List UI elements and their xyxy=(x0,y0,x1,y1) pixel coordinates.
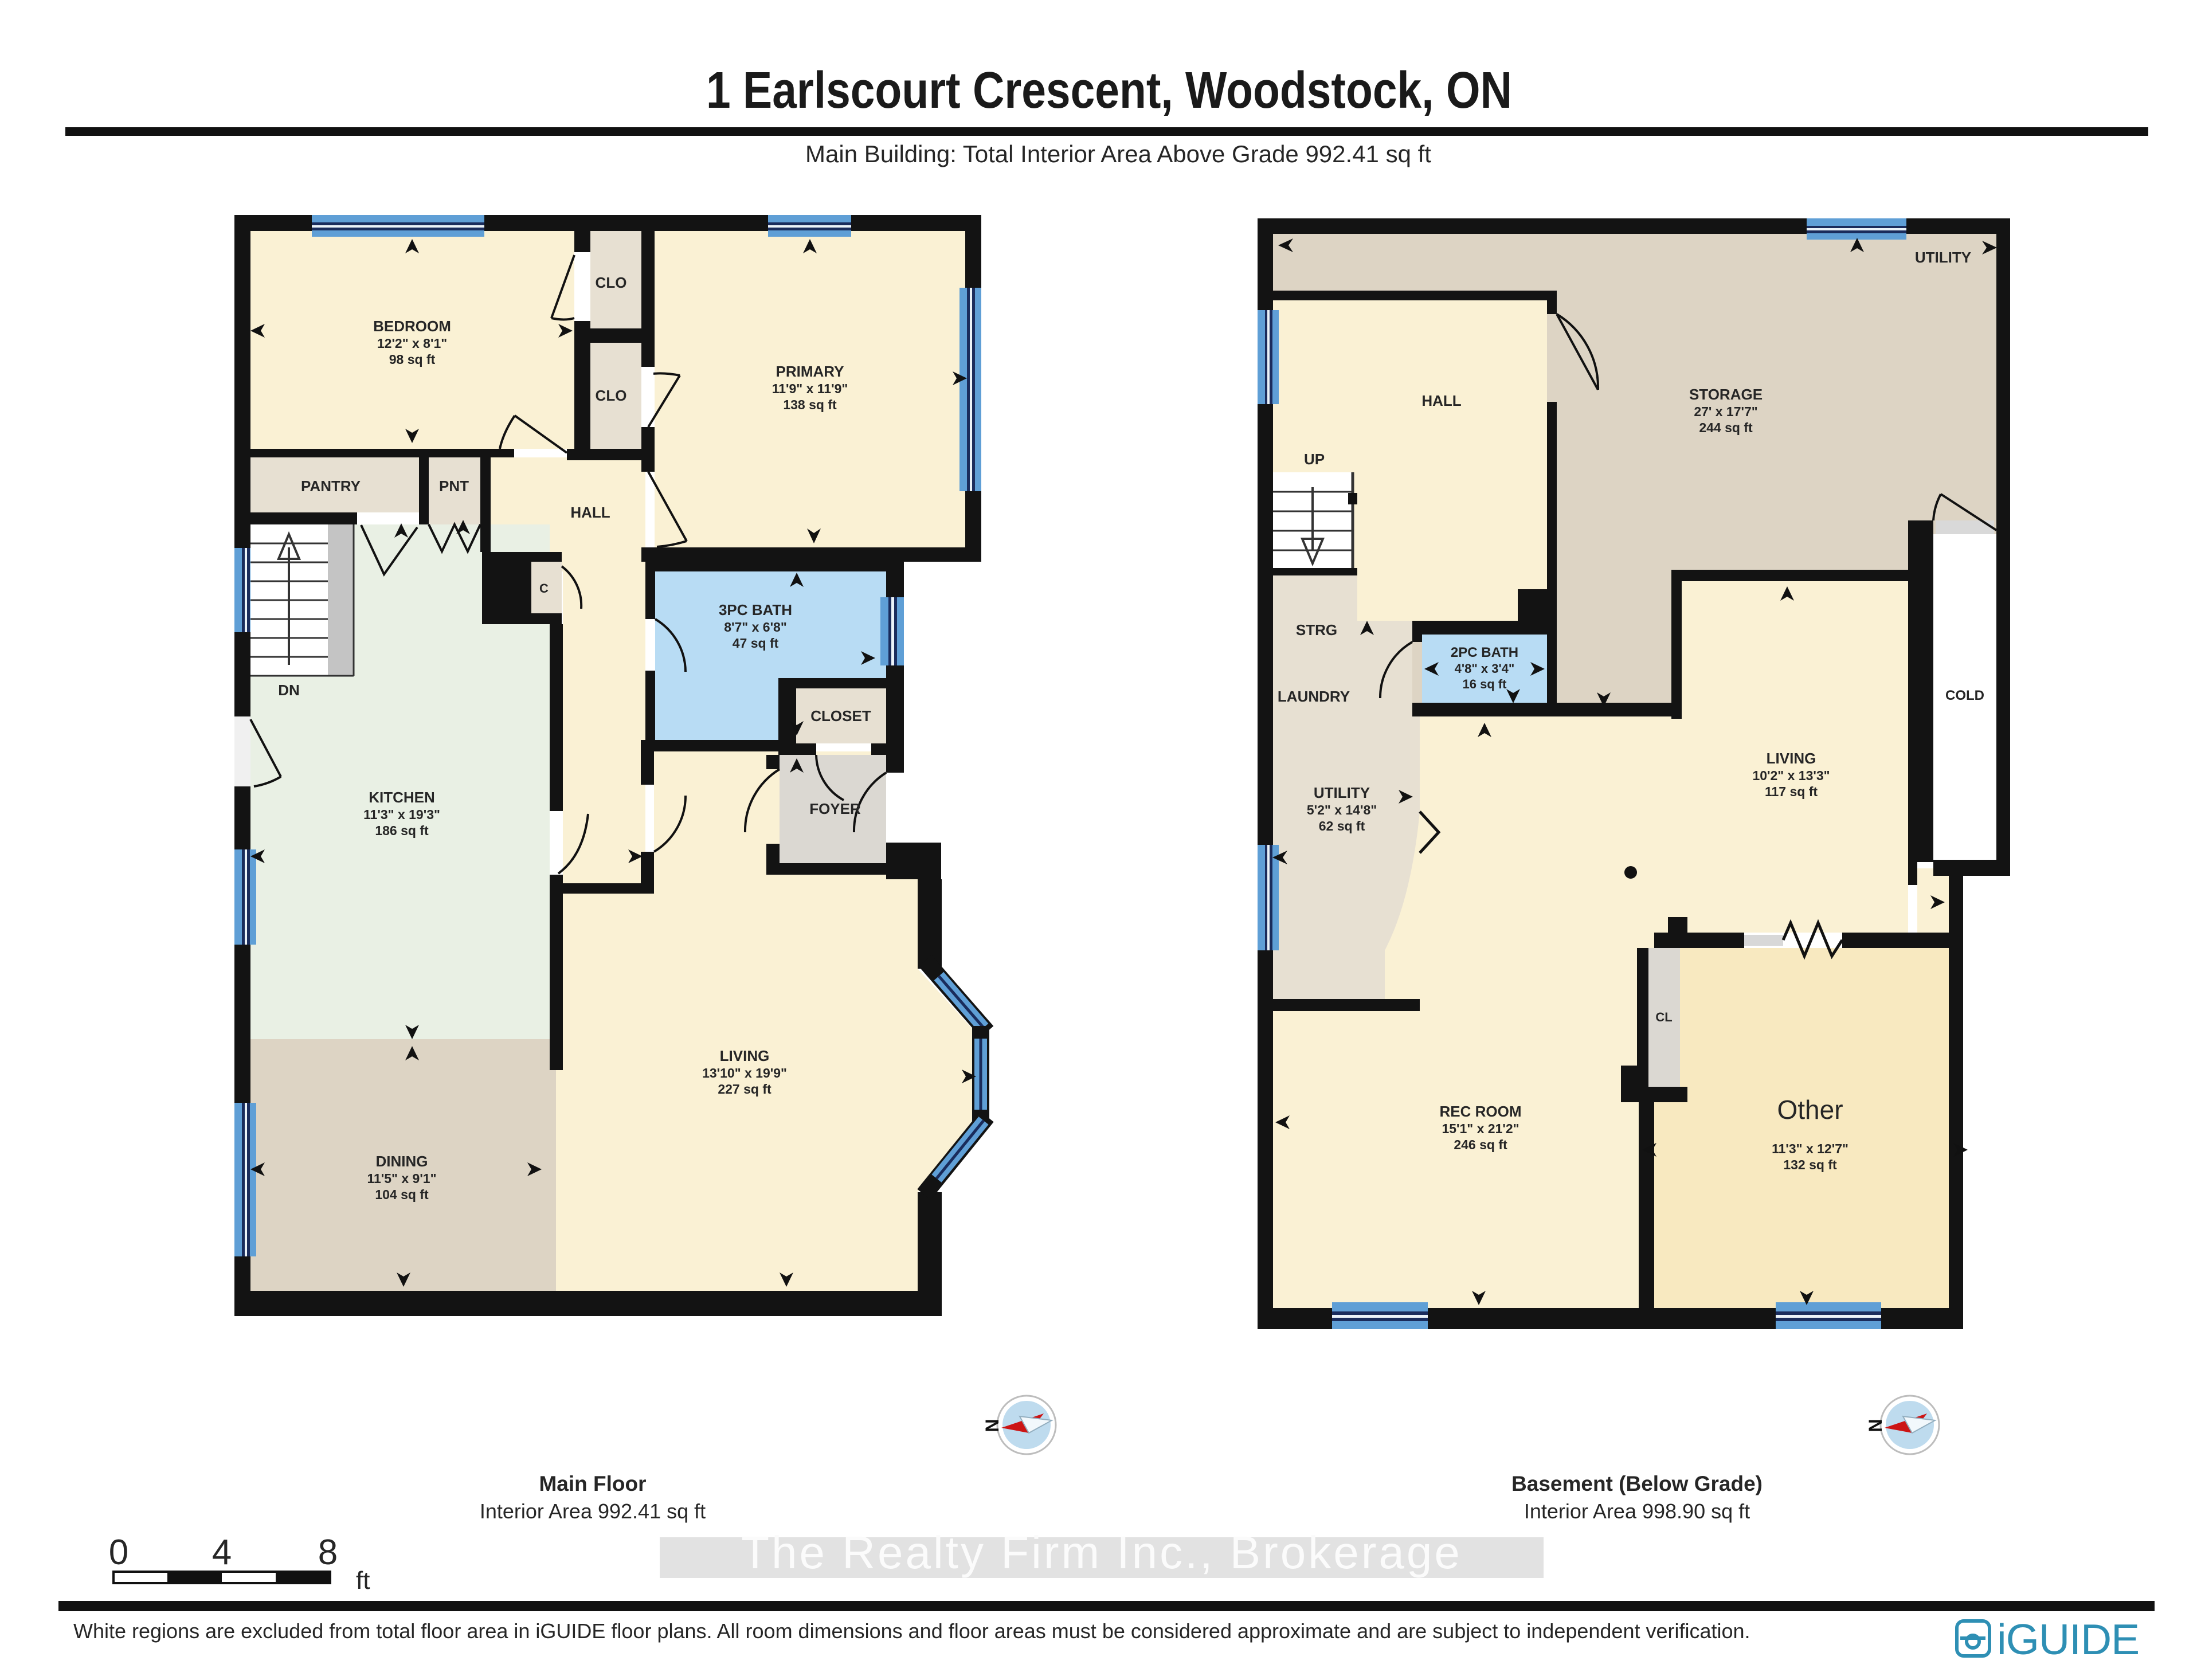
svg-text:8: 8 xyxy=(318,1533,338,1572)
svg-text:STRG: STRG xyxy=(1296,621,1337,639)
svg-text:White regions are excluded fro: White regions are excluded from total fl… xyxy=(73,1619,1750,1643)
svg-text:PRIMARY: PRIMARY xyxy=(776,363,844,380)
svg-text:246 sq ft: 246 sq ft xyxy=(1454,1137,1507,1152)
svg-text:N: N xyxy=(982,1419,1002,1432)
svg-text:C: C xyxy=(539,581,549,596)
svg-text:The Realty Firm Inc., Brokerag: The Realty Firm Inc., Brokerage xyxy=(741,1527,1462,1578)
svg-text:BEDROOM: BEDROOM xyxy=(373,318,451,335)
svg-text:CLO: CLO xyxy=(596,274,627,291)
svg-text:REC ROOM: REC ROOM xyxy=(1440,1103,1522,1120)
svg-text:15'1" x 21'2": 15'1" x 21'2" xyxy=(1442,1121,1519,1136)
svg-text:CLO: CLO xyxy=(596,387,627,404)
svg-text:PANTRY: PANTRY xyxy=(301,477,361,495)
svg-text:UTILITY: UTILITY xyxy=(1314,784,1370,801)
svg-text:4: 4 xyxy=(212,1533,232,1572)
svg-text:98 sq ft: 98 sq ft xyxy=(389,352,436,367)
svg-text:HALL: HALL xyxy=(570,504,610,521)
svg-text:4'8" x 3'4": 4'8" x 3'4" xyxy=(1455,661,1515,676)
svg-text:11'3" x 12'7": 11'3" x 12'7" xyxy=(1772,1141,1848,1156)
svg-text:CLOSET: CLOSET xyxy=(810,707,871,725)
svg-text:KITCHEN: KITCHEN xyxy=(369,789,435,806)
svg-text:CL: CL xyxy=(1655,1010,1672,1024)
svg-text:5'2" x 14'8": 5'2" x 14'8" xyxy=(1307,802,1377,817)
svg-text:LIVING: LIVING xyxy=(1767,750,1816,767)
svg-text:HALL: HALL xyxy=(1421,392,1461,409)
svg-text:LIVING: LIVING xyxy=(720,1047,770,1064)
svg-text:3PC BATH: 3PC BATH xyxy=(719,601,792,618)
svg-text:12'2" x 8'1": 12'2" x 8'1" xyxy=(377,336,447,351)
svg-text:11'9" x 11'9": 11'9" x 11'9" xyxy=(772,381,848,396)
svg-text:11'5" x 9'1": 11'5" x 9'1" xyxy=(367,1171,436,1186)
svg-text:ft: ft xyxy=(356,1567,370,1595)
svg-text:UTILITY: UTILITY xyxy=(1915,249,1971,266)
svg-text:16 sq ft: 16 sq ft xyxy=(1462,677,1507,691)
svg-text:UP: UP xyxy=(1304,451,1325,468)
svg-text:1 Earlscourt Crescent, Woodsto: 1 Earlscourt Crescent, Woodstock, ON xyxy=(706,62,1512,119)
svg-text:0: 0 xyxy=(109,1533,128,1572)
svg-text:LAUNDRY: LAUNDRY xyxy=(1278,688,1350,705)
svg-text:Main Building: Total Interior: Main Building: Total Interior Area Above… xyxy=(805,140,1431,167)
svg-text:10'2" x 13'3": 10'2" x 13'3" xyxy=(1752,768,1830,783)
svg-text:227 sq ft: 227 sq ft xyxy=(718,1082,771,1096)
svg-text:Interior Area 992.41 sq ft: Interior Area 992.41 sq ft xyxy=(480,1499,706,1523)
svg-text:Basement (Below Grade): Basement (Below Grade) xyxy=(1511,1472,1763,1495)
svg-text:27' x 17'7": 27' x 17'7" xyxy=(1694,404,1757,419)
svg-text:138 sq ft: 138 sq ft xyxy=(783,397,837,412)
svg-text:47 sq ft: 47 sq ft xyxy=(733,636,779,651)
svg-text:244 sq ft: 244 sq ft xyxy=(1699,420,1753,435)
svg-text:104 sq ft: 104 sq ft xyxy=(375,1187,429,1202)
svg-text:132 sq ft: 132 sq ft xyxy=(1783,1157,1837,1172)
svg-text:Other: Other xyxy=(1777,1095,1843,1125)
svg-text:13'10" x 19'9": 13'10" x 19'9" xyxy=(702,1066,787,1080)
svg-text:8'7" x 6'8": 8'7" x 6'8" xyxy=(724,620,787,635)
svg-text:DINING: DINING xyxy=(376,1153,428,1170)
svg-text:FOYER: FOYER xyxy=(809,800,861,817)
svg-text:STORAGE: STORAGE xyxy=(1689,386,1763,403)
svg-text:186 sq ft: 186 sq ft xyxy=(375,823,429,838)
svg-text:COLD: COLD xyxy=(1945,688,1984,703)
svg-text:2PC BATH: 2PC BATH xyxy=(1451,645,1518,660)
svg-text:DN: DN xyxy=(278,682,300,699)
svg-text:Main Floor: Main Floor xyxy=(539,1472,646,1495)
svg-text:iGUIDE: iGUIDE xyxy=(1997,1615,2139,1663)
svg-text:62 sq ft: 62 sq ft xyxy=(1319,819,1365,833)
svg-text:Interior Area 998.90 sq ft: Interior Area 998.90 sq ft xyxy=(1524,1499,1750,1523)
svg-text:PNT: PNT xyxy=(439,477,469,495)
svg-text:N: N xyxy=(1865,1419,1886,1432)
svg-text:11'3" x 19'3": 11'3" x 19'3" xyxy=(363,807,440,822)
svg-text:117 sq ft: 117 sq ft xyxy=(1765,784,1818,799)
